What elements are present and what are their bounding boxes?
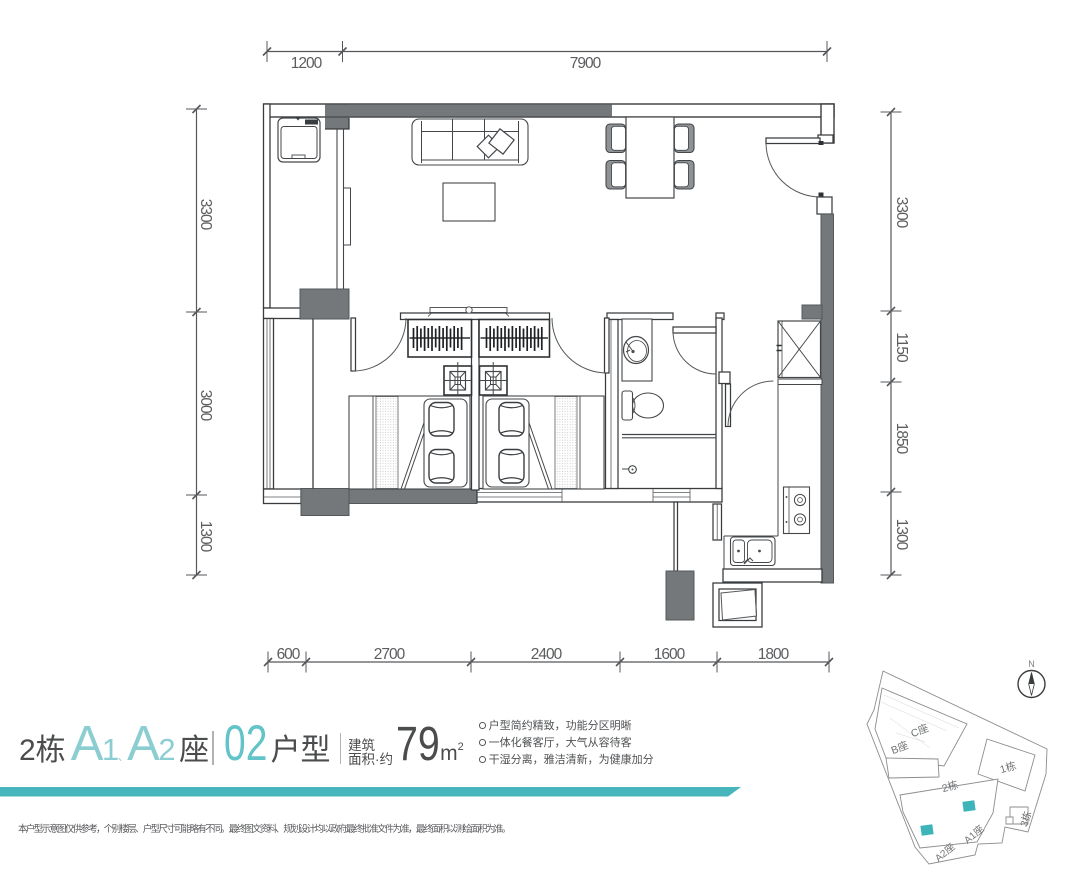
svg-text:2400: 2400 [531, 646, 563, 663]
svg-text:1150: 1150 [893, 332, 910, 363]
svg-text:3000: 3000 [197, 390, 214, 422]
svg-text:1800: 1800 [758, 646, 790, 663]
svg-text:1600: 1600 [654, 646, 686, 663]
svg-text:1200: 1200 [291, 55, 323, 72]
svg-text:3300: 3300 [893, 197, 910, 229]
svg-text:7900: 7900 [570, 55, 602, 72]
svg-text:1850: 1850 [893, 423, 910, 455]
svg-text:1300: 1300 [893, 519, 910, 551]
svg-text:600: 600 [277, 646, 301, 663]
svg-text:N: N [1028, 659, 1035, 669]
svg-text:3300: 3300 [197, 199, 214, 231]
svg-text:2700: 2700 [374, 646, 406, 663]
svg-text:1300: 1300 [197, 521, 214, 553]
